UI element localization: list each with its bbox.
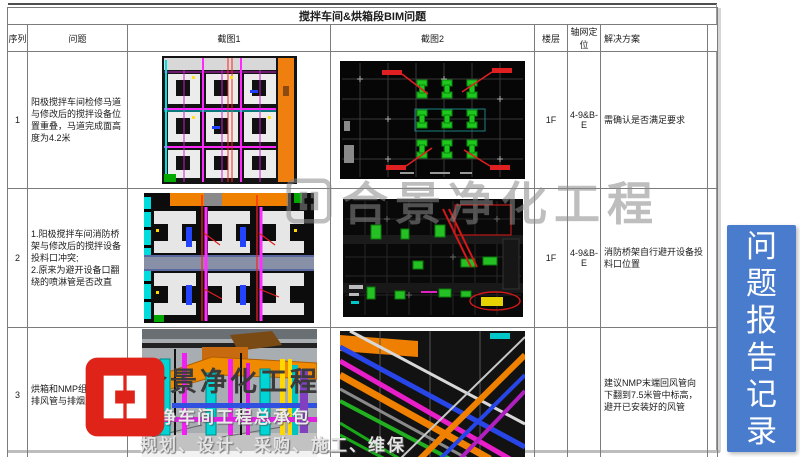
row1-floor: 1F <box>535 52 568 189</box>
cad-dark-plan-screenshot-row2 <box>343 199 523 317</box>
row2-problem: 1.阳极搅拌车间消防桥架与修改后的搅拌设备投料口冲突; 2.原来为避开设备口翻绕… <box>28 189 128 328</box>
row3-blank <box>708 328 718 457</box>
row2-screenshot1-cell <box>128 189 331 328</box>
row1-problem: 阳极搅拌车间检修马道与修改后的搅拌设备位置重叠，马道完成面高度为4.2米 <box>28 52 128 189</box>
row1-screenshot1-cell <box>128 52 331 189</box>
page-right-shadow <box>718 8 721 452</box>
row1-blank <box>708 52 718 189</box>
col-header-screenshot1: 截图1 <box>128 25 331 52</box>
row2-axis: 4-9&B-E <box>568 189 601 328</box>
row3-seq: 3 <box>8 328 28 457</box>
row1-solution: 需确认是否满足要求 <box>601 52 708 189</box>
row1-screenshot2-cell <box>331 52 535 189</box>
row2-floor: 1F <box>535 189 568 328</box>
problem-report-tab[interactable]: 问题报告记录 <box>727 225 796 452</box>
col-header-screenshot2: 截图2 <box>331 25 535 52</box>
table-row: 2 1.阳极搅拌车间消防桥架与修改后的搅拌设备投料口冲突; 2.原来为避开设备口… <box>8 189 718 328</box>
table-title: 搅拌车间&烘箱段BIM问题 <box>8 8 718 25</box>
page-top-edge <box>8 3 717 5</box>
table-row: 1 阳极搅拌车间检修马道与修改后的搅拌设备位置重叠，马道完成面高度为4.2米 <box>8 52 718 189</box>
row1-axis: 4-9&B-E <box>568 52 601 189</box>
col-header-axis: 轴网定位 <box>568 25 601 52</box>
cad-section-screenshot-row2 <box>144 193 314 323</box>
col-header-solution: 解决方案 <box>601 25 708 52</box>
col-header-floor: 楼层 <box>535 25 568 52</box>
cad-dark-plan-screenshot-row1 <box>340 61 525 179</box>
row1-seq: 1 <box>8 52 28 189</box>
row3-floor <box>535 328 568 457</box>
row2-blank <box>708 189 718 328</box>
row3-solution: 建议NMP末端回风管向下翻到7.5米管中标高，避开已安装好的风管 <box>601 328 708 457</box>
row2-seq: 2 <box>8 189 28 328</box>
row2-screenshot2-cell <box>331 189 535 328</box>
row2-solution: 消防桥架自行避开设备投料口位置 <box>601 189 708 328</box>
col-header-blank <box>708 25 718 52</box>
col-header-problem: 问题 <box>28 25 128 52</box>
header-row: 序列 问题 截图1 截图2 楼层 轴网定位 解决方案 <box>8 25 718 52</box>
brand-logo-icon <box>84 356 166 438</box>
problem-report-tab-label: 问题报告记录 <box>745 228 779 450</box>
cad-plan-screenshot-row1 <box>162 56 297 184</box>
report-page: 搅拌车间&烘箱段BIM问题 序列 问题 截图1 截图2 楼层 轴网定位 解决方案… <box>0 0 800 457</box>
row3-axis <box>568 328 601 457</box>
col-header-seq: 序列 <box>8 25 28 52</box>
